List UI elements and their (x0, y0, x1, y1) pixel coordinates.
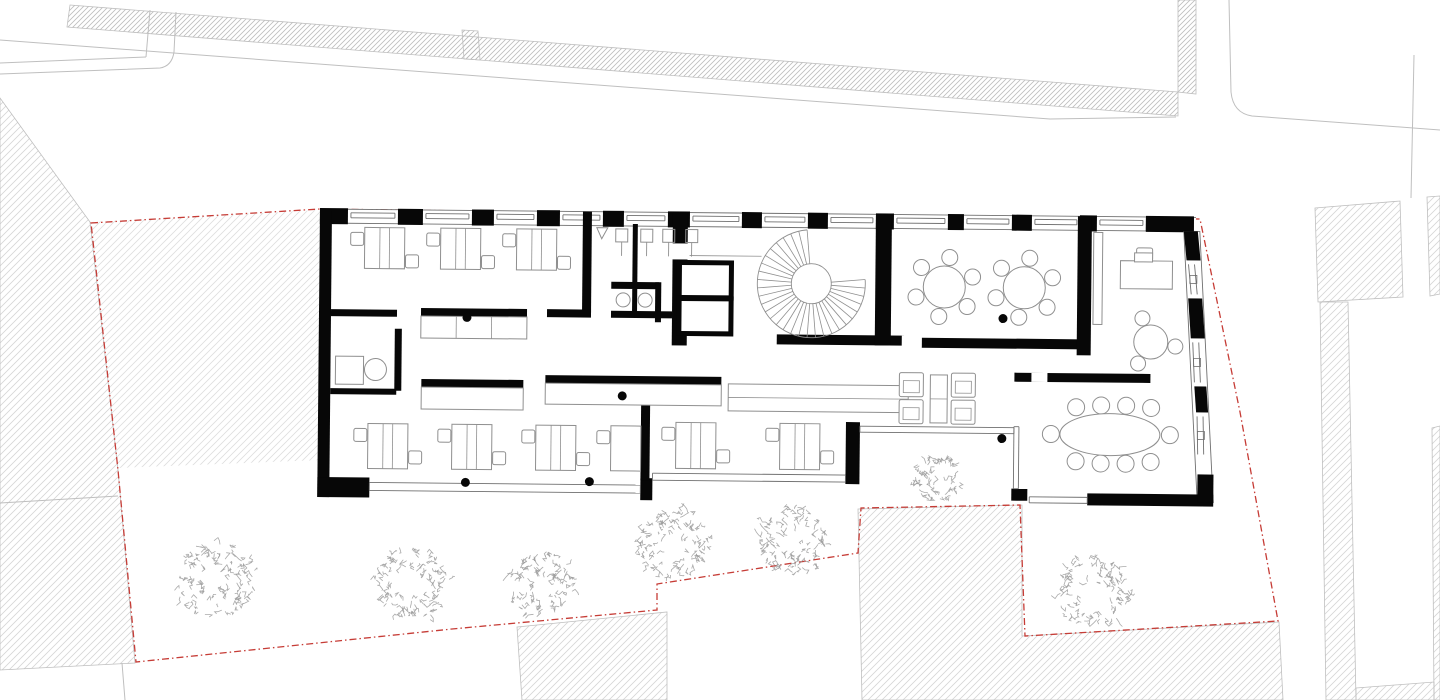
tree-foliage-stroke (654, 543, 658, 546)
tree-foliage-stroke (1069, 576, 1073, 579)
tree-foliage-stroke (438, 604, 443, 607)
tree-foliage-stroke (708, 536, 712, 539)
tree-foliage-stroke (1068, 604, 1075, 607)
tree-foliage-stroke (248, 578, 251, 585)
tree-foliage-stroke (1113, 610, 1114, 614)
tree-foliage-stroke (238, 564, 242, 568)
site-yard-hatch (91, 210, 322, 468)
building (317, 208, 1218, 507)
tree-foliage-stroke (1079, 583, 1087, 585)
tree-foliage-stroke (1118, 602, 1122, 605)
tree-foliage-stroke (439, 571, 445, 572)
tree-foliage-stroke (371, 576, 376, 580)
tree-foliage-stroke (806, 561, 809, 562)
tree-foliage-stroke (430, 577, 435, 584)
tree-foliage-stroke (1099, 570, 1102, 577)
tree-foliage-stroke (806, 522, 810, 527)
facade-pillar (742, 212, 762, 228)
double-desk (368, 423, 408, 468)
tree-foliage-stroke (514, 571, 518, 574)
tree-foliage-stroke (782, 551, 788, 555)
tree-foliage-stroke (231, 612, 234, 614)
tree-foliage-stroke (529, 555, 530, 558)
office-chair (351, 232, 364, 245)
tree-foliage-stroke (922, 456, 927, 463)
tree-foliage-stroke (255, 568, 258, 571)
tree-foliage-stroke (648, 522, 652, 525)
tree-foliage-stroke (241, 558, 245, 560)
table-chair (1117, 455, 1134, 472)
tree-foliage-stroke (767, 533, 773, 538)
tree-foliage-stroke (799, 540, 802, 544)
tree-foliage-stroke (1116, 618, 1122, 626)
table-chair (1135, 311, 1150, 326)
tree-foliage-stroke (643, 566, 649, 572)
table-chair (1067, 453, 1084, 470)
tree-foliage-stroke (680, 572, 685, 576)
double-desk (516, 229, 556, 270)
tree-foliage-stroke (190, 564, 195, 569)
round-table (1134, 325, 1168, 359)
table-chair (1143, 399, 1160, 416)
tree-foliage-stroke (1082, 613, 1085, 616)
tree-foliage-stroke (657, 551, 664, 554)
neighbour-parcel-hatch (517, 612, 667, 700)
tree-foliage-stroke (561, 601, 566, 606)
table-chair (942, 249, 958, 265)
tree-foliage-stroke (791, 510, 796, 514)
tree-foliage-stroke (512, 592, 515, 599)
wall (547, 309, 591, 317)
armchair (899, 400, 923, 424)
double-desk (611, 426, 641, 471)
tree-foliage-stroke (944, 476, 949, 480)
tree-foliage-stroke (557, 577, 560, 581)
tree-foliage-stroke (222, 565, 229, 572)
tree-foliage-stroke (395, 593, 399, 597)
structural-column (998, 314, 1007, 323)
tree-foliage-stroke (656, 517, 659, 522)
tree-foliage-stroke (180, 577, 184, 579)
tree-foliage-stroke (525, 614, 533, 618)
tree-foliage-stroke (440, 566, 444, 571)
tree-foliage-stroke (815, 519, 819, 525)
tree-foliage-stroke (642, 562, 648, 565)
wall (582, 212, 592, 313)
tree-foliage-stroke (689, 570, 693, 575)
tree-foliage-stroke (1075, 609, 1078, 612)
tree-foliage-stroke (427, 561, 432, 564)
tree-foliage-stroke (702, 546, 705, 550)
armchair (899, 373, 923, 397)
table-chair (931, 308, 947, 324)
context-line (0, 57, 146, 63)
tree-foliage-stroke (666, 574, 668, 581)
tree-foliage-stroke (555, 606, 559, 610)
table-chair (908, 289, 924, 305)
tree-foliage-stroke (814, 544, 818, 549)
tree-foliage-stroke (432, 561, 438, 563)
tree-foliage-stroke (391, 551, 397, 556)
tree-foliage-stroke (1069, 616, 1072, 621)
tree-foliage-stroke (427, 549, 433, 553)
tree-foliage-stroke (1112, 605, 1113, 610)
tree-foliage-stroke (1111, 586, 1114, 592)
tree-foliage-stroke (1096, 558, 1098, 566)
tree-foliage-stroke (406, 607, 408, 611)
facade-pillar (1194, 386, 1208, 412)
tree-foliage-stroke (1087, 575, 1088, 582)
tree-foliage-stroke (529, 584, 532, 587)
window-band-line (1018, 427, 1019, 489)
tree-foliage-stroke (642, 529, 647, 532)
double-desk (780, 423, 820, 469)
tree-foliage-stroke (408, 612, 410, 616)
office-chair (493, 452, 506, 465)
tree-foliage-stroke (915, 468, 919, 471)
tree-foliage-stroke (214, 561, 219, 564)
facade-pillar (808, 213, 828, 229)
tree-foliage-stroke (177, 597, 181, 606)
tree-foliage-stroke (511, 573, 514, 577)
tree-foliage-stroke (1061, 606, 1066, 611)
tree-foliage-stroke (522, 592, 526, 599)
tree-foliage-stroke (1091, 563, 1096, 567)
tree-foliage-stroke (421, 599, 427, 601)
street-edge-hatch (1178, 0, 1196, 94)
tree-foliage-stroke (430, 615, 433, 622)
tree-foliage-stroke (399, 548, 401, 554)
tree-foliage-stroke (669, 530, 673, 534)
tree-foliage-stroke (434, 557, 437, 561)
tree-foliage-stroke (220, 589, 227, 593)
tree-foliage-stroke (760, 540, 763, 542)
tree-foliage-stroke (760, 532, 762, 537)
context-line (122, 663, 125, 700)
table-chair (1022, 250, 1038, 266)
office-chair (409, 451, 422, 464)
tree-foliage-stroke (423, 594, 429, 598)
tree-foliage-stroke (685, 568, 688, 575)
tree-foliage-stroke (1069, 569, 1073, 571)
door-opening (902, 336, 922, 348)
tree-foliage-stroke (919, 490, 928, 493)
tree-foliage-stroke (802, 568, 809, 574)
tree-foliage-stroke (393, 614, 397, 620)
tree-foliage-stroke (1112, 583, 1115, 584)
office-chair (522, 430, 535, 443)
tree-foliage-stroke (927, 484, 934, 489)
structural-column (462, 313, 471, 322)
tree-foliage-stroke (534, 557, 539, 566)
tree-foliage-stroke (772, 545, 776, 549)
office-chair (438, 429, 451, 442)
tree-foliage-stroke (563, 592, 567, 595)
tree-foliage-stroke (543, 555, 547, 561)
tree-foliage-stroke (1077, 596, 1081, 603)
tree-foliage-stroke (773, 561, 776, 566)
shaft-room (679, 298, 731, 333)
tree-foliage-stroke (397, 606, 403, 613)
wall (611, 282, 659, 289)
armchair (951, 373, 975, 397)
tree-foliage-stroke (246, 562, 253, 565)
tree-foliage-stroke (706, 538, 708, 542)
neighbour-parcel-hatch (1356, 682, 1434, 700)
structural-column (461, 478, 470, 487)
table-chair (1068, 399, 1085, 416)
tree-foliage-stroke (770, 551, 775, 555)
tree-foliage-stroke (530, 595, 533, 597)
tree-foliage-stroke (214, 557, 216, 560)
tree-foliage-stroke (539, 609, 543, 612)
tree-foliage-stroke (215, 610, 222, 614)
tree-foliage-stroke (507, 569, 513, 574)
office-chair (354, 428, 367, 441)
neighbour-parcel-hatch (1432, 426, 1440, 700)
tree-foliage-stroke (949, 487, 952, 490)
counter (421, 316, 527, 339)
tree-foliage-stroke (782, 508, 788, 513)
tree-foliage-stroke (692, 565, 695, 571)
window-band-line (860, 432, 1014, 433)
tree-foliage-stroke (189, 602, 193, 608)
neighbour-parcel-hatch (858, 505, 1283, 700)
tree-foliage-stroke (774, 556, 776, 560)
tree-foliage-stroke (523, 612, 527, 616)
tree-foliage-stroke (760, 542, 761, 544)
tree-foliage-stroke (414, 605, 417, 612)
window-band-line (1029, 503, 1087, 504)
double-desk (440, 228, 480, 269)
tree-foliage-stroke (236, 575, 241, 584)
office-chair (481, 256, 494, 269)
table-chair (1039, 299, 1055, 315)
tree-foliage-stroke (794, 505, 796, 509)
tree-foliage-stroke (217, 553, 220, 557)
double-desk (452, 424, 492, 469)
tree-foliage-stroke (400, 595, 404, 601)
counter (545, 383, 721, 406)
table-chair (959, 298, 975, 314)
wall (421, 379, 523, 388)
tree-foliage-stroke (940, 497, 944, 500)
tree-foliage-stroke (661, 535, 665, 542)
tree-foliage-stroke (649, 551, 654, 555)
tree-foliage-stroke (785, 569, 793, 573)
tree-foliage-stroke (437, 588, 440, 592)
tree-foliage-stroke (945, 491, 950, 495)
wall (632, 224, 638, 282)
tree-foliage-stroke (691, 551, 696, 557)
tree-foliage-stroke (440, 577, 444, 579)
tree-foliage-stroke (1097, 582, 1101, 584)
facade-pillar (472, 209, 494, 225)
tree-foliage-stroke (927, 494, 930, 495)
table-chair (1042, 425, 1059, 442)
tree-foliage-stroke (701, 557, 705, 562)
structural-column (997, 434, 1006, 443)
neighbour-parcel-hatch (1320, 302, 1356, 700)
tree-foliage-stroke (680, 513, 689, 518)
tree-foliage-stroke (660, 527, 663, 530)
tree-foliage-stroke (646, 534, 651, 538)
tree-foliage-stroke (691, 512, 695, 515)
tree-foliage-stroke (823, 540, 825, 547)
tree-foliage-stroke (424, 614, 428, 617)
tree (503, 552, 579, 619)
tree-foliage-stroke (225, 575, 229, 580)
tree-foliage-stroke (934, 476, 938, 485)
office-chair (503, 234, 516, 247)
tree-foliage-stroke (1104, 581, 1110, 587)
table-chair (913, 259, 929, 275)
tree-foliage-stroke (559, 597, 561, 606)
tree-foliage-stroke (427, 579, 431, 581)
tree-foliage-stroke (181, 591, 184, 596)
tree (1051, 555, 1134, 627)
tree-foliage-stroke (517, 596, 521, 599)
tree-foliage-stroke (692, 540, 696, 544)
tree-foliage-stroke (1067, 593, 1073, 595)
tree-foliage-stroke (241, 599, 249, 604)
tree-foliage-stroke (387, 592, 389, 596)
office-chair (427, 233, 440, 246)
tree-foliage-stroke (554, 555, 560, 558)
tree-foliage-stroke (702, 525, 705, 527)
wash-basin (638, 293, 652, 307)
tree-foliage-stroke (775, 560, 777, 568)
tree-foliage-stroke (389, 551, 392, 554)
tree-foliage-stroke (662, 510, 667, 512)
wall (1087, 493, 1213, 506)
tree-foliage-stroke (790, 566, 794, 567)
tree-foliage-stroke (1098, 619, 1100, 624)
tree-foliage-stroke (543, 572, 545, 578)
tree-foliage-stroke (766, 558, 768, 564)
wall (845, 422, 860, 484)
tree-foliage-stroke (184, 578, 188, 580)
table-chair (988, 290, 1004, 306)
tree-foliage-stroke (410, 563, 413, 566)
tree-foliage-stroke (656, 572, 660, 577)
tree-foliage-stroke (781, 530, 787, 536)
neighbour-parcel-hatch (1315, 201, 1403, 302)
tree-foliage-stroke (954, 490, 956, 494)
tree-foliage-stroke (1063, 563, 1068, 569)
facade-pillar (537, 210, 560, 226)
office-chair (597, 431, 610, 444)
facade-pillar (398, 209, 423, 225)
tree-foliage-stroke (707, 546, 711, 550)
tree-foliage-stroke (416, 554, 419, 557)
tree-foliage-stroke (389, 583, 392, 588)
tree-foliage-stroke (680, 564, 683, 570)
tree-foliage-stroke (678, 526, 681, 529)
context-line (1411, 55, 1414, 198)
tree-foliage-stroke (411, 566, 415, 570)
tree-foliage-stroke (960, 483, 963, 487)
table-chair (1044, 270, 1060, 286)
counter (421, 387, 523, 410)
tree-foliage-stroke (556, 591, 563, 595)
tree-foliage-stroke (246, 574, 248, 578)
tree-foliage-stroke (951, 481, 955, 484)
stair-core (791, 264, 831, 304)
tree-foliage-stroke (650, 564, 655, 568)
tree-foliage-stroke (658, 532, 659, 534)
tree-foliage-stroke (417, 564, 420, 567)
office-chair (557, 256, 570, 269)
tree-foliage-stroke (237, 587, 239, 592)
tree-foliage-stroke (682, 503, 688, 512)
tree-foliage-stroke (1090, 615, 1093, 619)
tree-foliage-stroke (798, 506, 806, 509)
double-desk (676, 422, 716, 468)
desk-return (1135, 253, 1153, 262)
tree-foliage-stroke (1119, 574, 1122, 581)
table-chair (1092, 455, 1109, 472)
tree-foliage-stroke (645, 547, 647, 551)
floor-plan-drawing (0, 0, 1440, 700)
tree-foliage-stroke (1072, 617, 1078, 620)
tree-foliage-stroke (696, 559, 700, 563)
tree-foliage-stroke (814, 525, 815, 530)
tree-foliage-stroke (537, 599, 540, 601)
tree-foliage-stroke (1076, 621, 1081, 623)
tree-foliage-stroke (686, 522, 689, 525)
table-chair (1142, 453, 1159, 470)
tree-foliage-stroke (556, 568, 560, 571)
tree-foliage-stroke (637, 545, 642, 548)
facade-pillar (603, 211, 624, 227)
tree-foliage-stroke (397, 613, 401, 617)
door-opening (1031, 373, 1047, 382)
wash-basin (616, 293, 630, 307)
street-edge-hatch (462, 30, 480, 60)
tree-foliage-stroke (248, 592, 252, 596)
tree-foliage-stroke (806, 510, 811, 514)
tree-foliage-stroke (215, 564, 222, 565)
tree-foliage-stroke (1093, 612, 1099, 617)
tree-foliage-stroke (768, 562, 772, 566)
tree-foliage-stroke (194, 611, 198, 615)
tree-foliage-stroke (566, 560, 571, 565)
tree-foliage-stroke (549, 595, 552, 597)
tree-foliage-stroke (664, 513, 670, 517)
tree-foliage-stroke (783, 514, 788, 518)
tree-foliage-stroke (185, 605, 190, 609)
counter (1093, 232, 1103, 324)
tree-foliage-stroke (652, 568, 655, 571)
desk (1120, 261, 1172, 289)
office-chair (577, 452, 590, 465)
wall (1197, 474, 1213, 502)
tree-foliage-stroke (1073, 561, 1076, 565)
tree-foliage-stroke (400, 614, 403, 617)
tree-foliage-stroke (572, 583, 575, 586)
facade-pillar (948, 214, 964, 230)
counter (335, 356, 363, 384)
tree-foliage-stroke (794, 524, 796, 532)
tree-foliage-stroke (397, 566, 401, 573)
round-table (1003, 267, 1045, 309)
tree-foliage-stroke (1063, 613, 1067, 616)
tree-foliage-stroke (1110, 598, 1112, 604)
tree-foliage-stroke (191, 595, 197, 599)
tree-foliage-stroke (669, 526, 675, 530)
wall (394, 329, 402, 391)
